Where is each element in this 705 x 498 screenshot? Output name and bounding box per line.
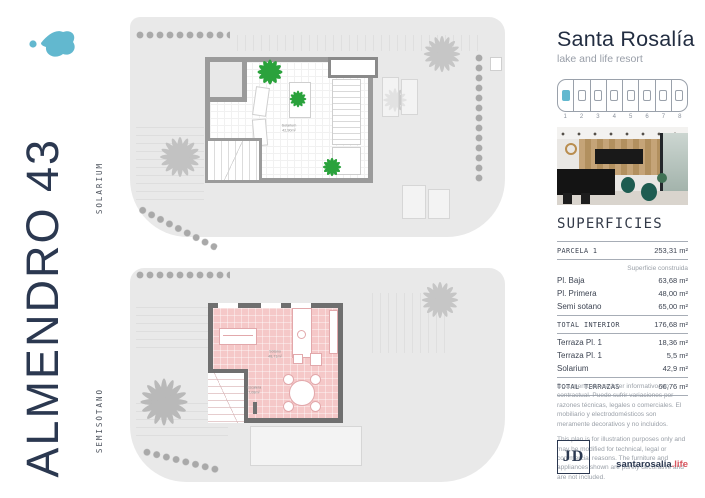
solarium-floor-plan: Solarium 42,90m²	[205, 57, 373, 183]
table-row-total-interior: TOTAL INTERIOR 176,68 m²	[557, 320, 688, 329]
tall-unit	[329, 310, 338, 354]
unit-plot-icon	[562, 90, 570, 101]
gate-box	[490, 57, 502, 71]
photo-green-chair	[641, 183, 657, 201]
appliance	[310, 353, 322, 366]
pergola-louvers	[332, 79, 361, 145]
unit-number: 2	[573, 114, 589, 120]
terrace-pattern	[250, 426, 362, 466]
unit-number: 7	[655, 114, 671, 120]
dining-chair	[310, 401, 321, 412]
bed	[219, 328, 257, 345]
tree-icon	[255, 57, 285, 87]
table-rule	[557, 333, 688, 334]
semisotano-floor-plan: Sótano 48,71m² Escalera 7,08m²	[208, 303, 343, 423]
unit-number: 3	[590, 114, 606, 120]
site-map-unit-1	[558, 80, 574, 111]
unit-plot-icon	[594, 90, 602, 101]
table-rule	[557, 377, 688, 378]
furniture-outline	[401, 79, 418, 115]
dining-table	[289, 380, 315, 406]
palm-tree-icon	[138, 376, 190, 428]
hedge-row	[135, 270, 230, 281]
unit-number: 4	[606, 114, 622, 120]
unit-plot-icon	[675, 90, 683, 101]
site-map-unit-numbers: 1 2 3 4 5 6 7 8	[557, 114, 688, 120]
solarium-plot: Solarium 42,90m²	[130, 17, 505, 237]
unit-plot-icon	[659, 90, 667, 101]
website-link[interactable]: santarosalia.life	[616, 459, 688, 470]
website-name[interactable]: santarosalia	[616, 459, 671, 470]
upper-floor-label: SOLARIUM	[95, 162, 104, 214]
table-row-parcela: PARCELA 1 253,31 m²	[557, 246, 688, 255]
site-map	[557, 79, 688, 112]
site-map-unit-2	[574, 80, 590, 111]
window	[218, 303, 238, 308]
furniture-outline	[382, 77, 399, 117]
stairs	[208, 369, 248, 423]
chimney-box	[328, 57, 378, 78]
site-map-unit-4	[607, 80, 623, 111]
site-map-unit-7	[656, 80, 672, 111]
sun-lounger	[252, 86, 270, 117]
palm-tree-icon	[420, 280, 460, 320]
hedge-row	[135, 30, 230, 41]
site-map-unit-6	[639, 80, 655, 111]
table-row: Semi sotano 65,00 m²	[557, 302, 688, 311]
site-map-unit-3	[591, 80, 607, 111]
brochure-sheet: ALMENDRO 43 SOLARIUM SEMISÓTANO	[0, 0, 705, 498]
superficies-title: SUPERFICIES	[557, 216, 663, 232]
unit-number: 5	[623, 114, 639, 120]
unit-plot-icon	[643, 90, 651, 101]
unit-number: 6	[639, 114, 655, 120]
stairs	[205, 138, 262, 183]
unit-plot-icon	[578, 90, 586, 101]
photo-plant	[657, 173, 667, 183]
jd-logo: JD	[557, 440, 590, 474]
lower-floor-label: SEMISÓTANO	[95, 388, 104, 453]
table-row: Pl. Primera 48,00 m²	[557, 289, 688, 298]
table-row: Pl. Baja 63,68 m²	[557, 276, 688, 285]
tree-icon	[288, 89, 308, 109]
photo-mirror	[565, 143, 577, 155]
hedge-row	[141, 446, 221, 476]
furniture-outline	[402, 185, 426, 219]
hedge-row	[474, 53, 485, 183]
unit-number: 8	[672, 114, 688, 120]
stair-bulkhead-room	[205, 57, 247, 102]
solarium-room-label: Solarium 42,90m²	[274, 124, 304, 133]
palm-tree-icon	[422, 34, 462, 74]
table-rule	[557, 259, 688, 260]
table-rule	[557, 315, 688, 316]
window	[261, 303, 281, 308]
hob	[293, 354, 303, 364]
table-row: Solarium 42,9 m²	[557, 364, 688, 373]
site-map-unit-5	[623, 80, 639, 111]
sotano-room-label: Sótano 48,71m²	[263, 350, 288, 359]
table-row: Terraza Pl. 1 18,36 m²	[557, 338, 688, 347]
hedge-row	[136, 204, 219, 254]
site-map-unit-8	[672, 80, 687, 111]
project-title: ALMENDRO 43	[20, 138, 65, 478]
photo-green-chair	[621, 177, 635, 193]
unit-plot-icon	[610, 90, 618, 101]
brand-name: Santa Rosalía	[557, 27, 695, 52]
photo-window	[660, 133, 688, 197]
furniture-outline	[428, 189, 450, 219]
website-tld[interactable]: .life	[672, 459, 688, 470]
table-row: Terraza Pl. 1 5,5 m²	[557, 351, 688, 360]
lake-logo-icon	[28, 26, 78, 68]
photo-black-cabinet	[595, 149, 643, 164]
superficies-table: PARCELA 1 253,31 m² Superficie construid…	[557, 239, 688, 398]
semisotano-plot: Sótano 48,71m² Escalera 7,08m²	[130, 268, 505, 482]
table-rule	[557, 241, 688, 242]
palm-tree-icon	[158, 135, 202, 179]
sink	[297, 330, 306, 339]
photo-stool	[581, 193, 590, 204]
column-header: Superficie construida	[557, 265, 688, 272]
photo-stool	[563, 193, 572, 204]
bed-line	[223, 335, 253, 336]
unit-plot-icon	[627, 90, 635, 101]
door-stub	[253, 402, 257, 414]
tree-icon	[321, 156, 343, 178]
escalera-label: Escalera 7,08m²	[245, 386, 264, 395]
brand-tagline: lake and life resort	[557, 53, 643, 65]
photo-kitchen-island	[557, 169, 615, 195]
unit-number: 1	[557, 114, 573, 120]
interior-photo	[557, 127, 688, 205]
disclaimer-es: Documento de carácter informativo, no co…	[557, 382, 687, 429]
